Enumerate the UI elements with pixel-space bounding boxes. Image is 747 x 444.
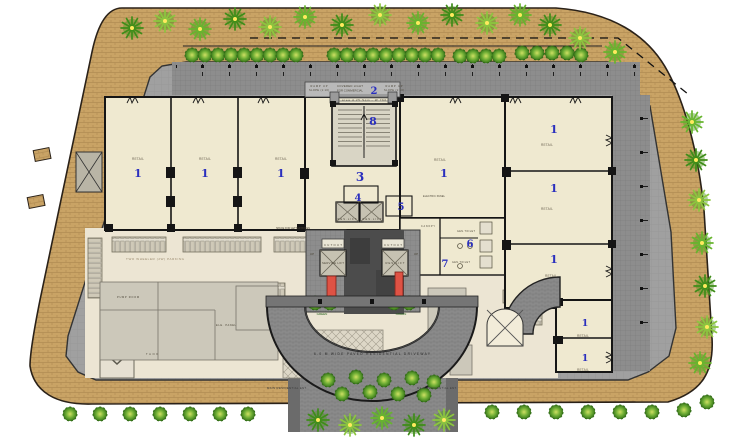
unit-number-1: 1: [201, 167, 209, 180]
unit-number-1: 1: [582, 318, 589, 329]
side-arch-gate: [487, 309, 523, 346]
two-wheeler-parking-label: TWO WHEELER (2W) PARKING: [126, 257, 185, 261]
covered-light-line2: FOR COMMERCIAL: [337, 89, 363, 93]
retail-label: RETAIL: [577, 368, 589, 372]
cutout-label: CUTOUT: [324, 243, 342, 247]
unit-number-5: 5: [398, 202, 405, 213]
bollard-row-top: [176, 64, 636, 76]
canopy-label: CANOPY: [421, 225, 435, 228]
ramp-slope-right: SLOPE (1:10): [384, 88, 404, 92]
bollard-row-right: [638, 100, 650, 350]
res-lift-label: RES.LIFT: [338, 218, 357, 221]
up-label: UP: [310, 252, 314, 256]
unit-number-1: 1: [277, 167, 285, 180]
staircase: [330, 101, 398, 166]
retail-label: RETAIL: [132, 157, 144, 161]
retail-label: RETAIL: [434, 158, 446, 162]
ramp-slope-left: SLOPE (1:10): [309, 88, 329, 92]
covered-light-line1: COVERED LIGHT: [337, 84, 363, 88]
retail-label: RETAIL: [199, 157, 211, 161]
driveway-label: 6.0 M WIDE PAVED RESIDENTIAL DRIVEWAY: [314, 352, 431, 356]
unit-number-1: 1: [134, 167, 142, 180]
unit-number-1: 1: [440, 167, 448, 180]
ramp-up-right: RAMP UP: [386, 84, 403, 88]
retail-label: RETAIL: [275, 157, 287, 161]
main-ent-label-left: MAIN RESIDENTIAL ENT.: [267, 386, 307, 390]
unit-number-3: 3: [356, 170, 364, 184]
unit-number-1: 1: [550, 123, 558, 136]
unit-number-1: 1: [550, 182, 558, 195]
unit-number-8: 8: [369, 115, 377, 128]
letter-boxes-label: SPACE FOR LETTER BOXES: [276, 226, 310, 230]
retail-label: RETAIL: [577, 334, 589, 338]
green-label: GREEN: [317, 312, 328, 316]
pump-room-label: PUMP ROOM: [117, 295, 139, 299]
electric-panel-label: ELECTRIC PANEL: [423, 195, 446, 198]
unit-number-1: 1: [582, 353, 589, 364]
unit-number-6: 6: [467, 239, 474, 250]
utility-rooms: [100, 282, 278, 360]
up-label: UP: [414, 252, 418, 256]
unit-number-7: 7: [442, 259, 449, 270]
res-lift-label: RES.LIFT: [363, 218, 382, 221]
floor-plan-page: RETAIL RETAIL RETAIL RETAIL RETAIL RETAI…: [0, 0, 747, 444]
retail-label: RETAIL: [545, 274, 557, 278]
ramp-up-left: RAMP UP: [311, 84, 328, 88]
entrance-steps-note: area 4.25 Sqm - W 760: [342, 98, 386, 102]
gen-toilet-label: GEN.TOILET: [457, 230, 476, 233]
unit-number-2: 2: [371, 86, 378, 97]
entry-feature-left: [327, 276, 336, 298]
retail-label: RETAIL: [541, 143, 553, 147]
gen-toilet-label: GEN.TOILET: [452, 261, 471, 264]
green-label: GREEN: [396, 312, 407, 316]
service-lift-label: SERVICE LIFT: [322, 261, 344, 265]
floor-plan-canvas: RETAIL RETAIL RETAIL RETAIL RETAIL RETAI…: [0, 0, 747, 444]
retail-label: RETAIL: [541, 207, 553, 211]
ele-panel-label: ELE. PANEL: [216, 323, 237, 327]
unit-number-4: 4: [355, 193, 362, 204]
main-ent-label-right: MAIN RESIDENTIAL ENT.: [417, 386, 457, 390]
entry-feature-right: [395, 272, 403, 298]
cutout-label: CUTOUT: [384, 243, 402, 247]
res-lift-label: RES.LIFT: [386, 261, 405, 265]
unit-number-1: 1: [550, 253, 558, 266]
